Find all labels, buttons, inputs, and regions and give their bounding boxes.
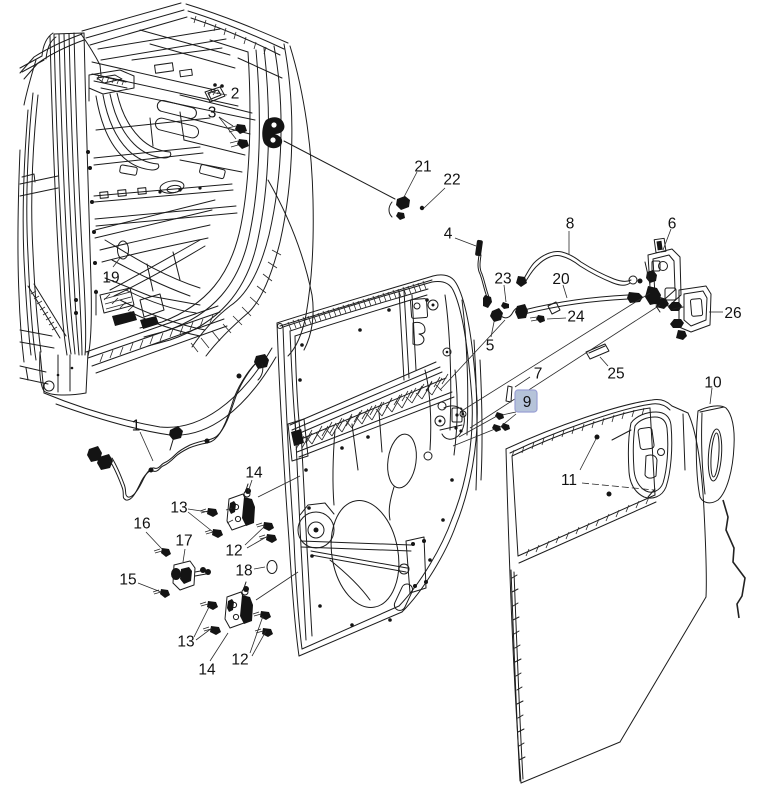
svg-text:5: 5 [486, 338, 495, 355]
svg-text:18: 18 [235, 563, 252, 580]
svg-text:25: 25 [607, 366, 624, 383]
svg-text:13: 13 [170, 500, 187, 517]
svg-text:15: 15 [119, 572, 136, 589]
svg-text:11: 11 [561, 472, 577, 489]
svg-text:14: 14 [245, 465, 263, 482]
svg-text:1: 1 [132, 418, 141, 435]
svg-text:12: 12 [225, 543, 242, 560]
svg-text:9: 9 [523, 394, 532, 411]
svg-text:2: 2 [231, 86, 240, 103]
svg-text:19: 19 [102, 270, 119, 287]
svg-text:26: 26 [724, 305, 741, 322]
svg-text:6: 6 [668, 216, 677, 233]
svg-text:21: 21 [414, 159, 431, 176]
svg-text:3: 3 [208, 105, 217, 122]
svg-text:7: 7 [534, 366, 543, 383]
svg-text:20: 20 [552, 271, 570, 288]
svg-text:17: 17 [175, 533, 192, 550]
svg-text:24: 24 [567, 309, 585, 326]
svg-text:22: 22 [443, 172, 460, 189]
svg-text:10: 10 [704, 375, 722, 392]
svg-text:13: 13 [177, 634, 194, 651]
svg-text:12: 12 [231, 652, 248, 669]
svg-text:14: 14 [198, 662, 216, 679]
svg-text:23: 23 [494, 271, 511, 288]
svg-text:4: 4 [444, 226, 453, 243]
svg-text:8: 8 [566, 216, 575, 233]
svg-text:16: 16 [133, 516, 150, 533]
